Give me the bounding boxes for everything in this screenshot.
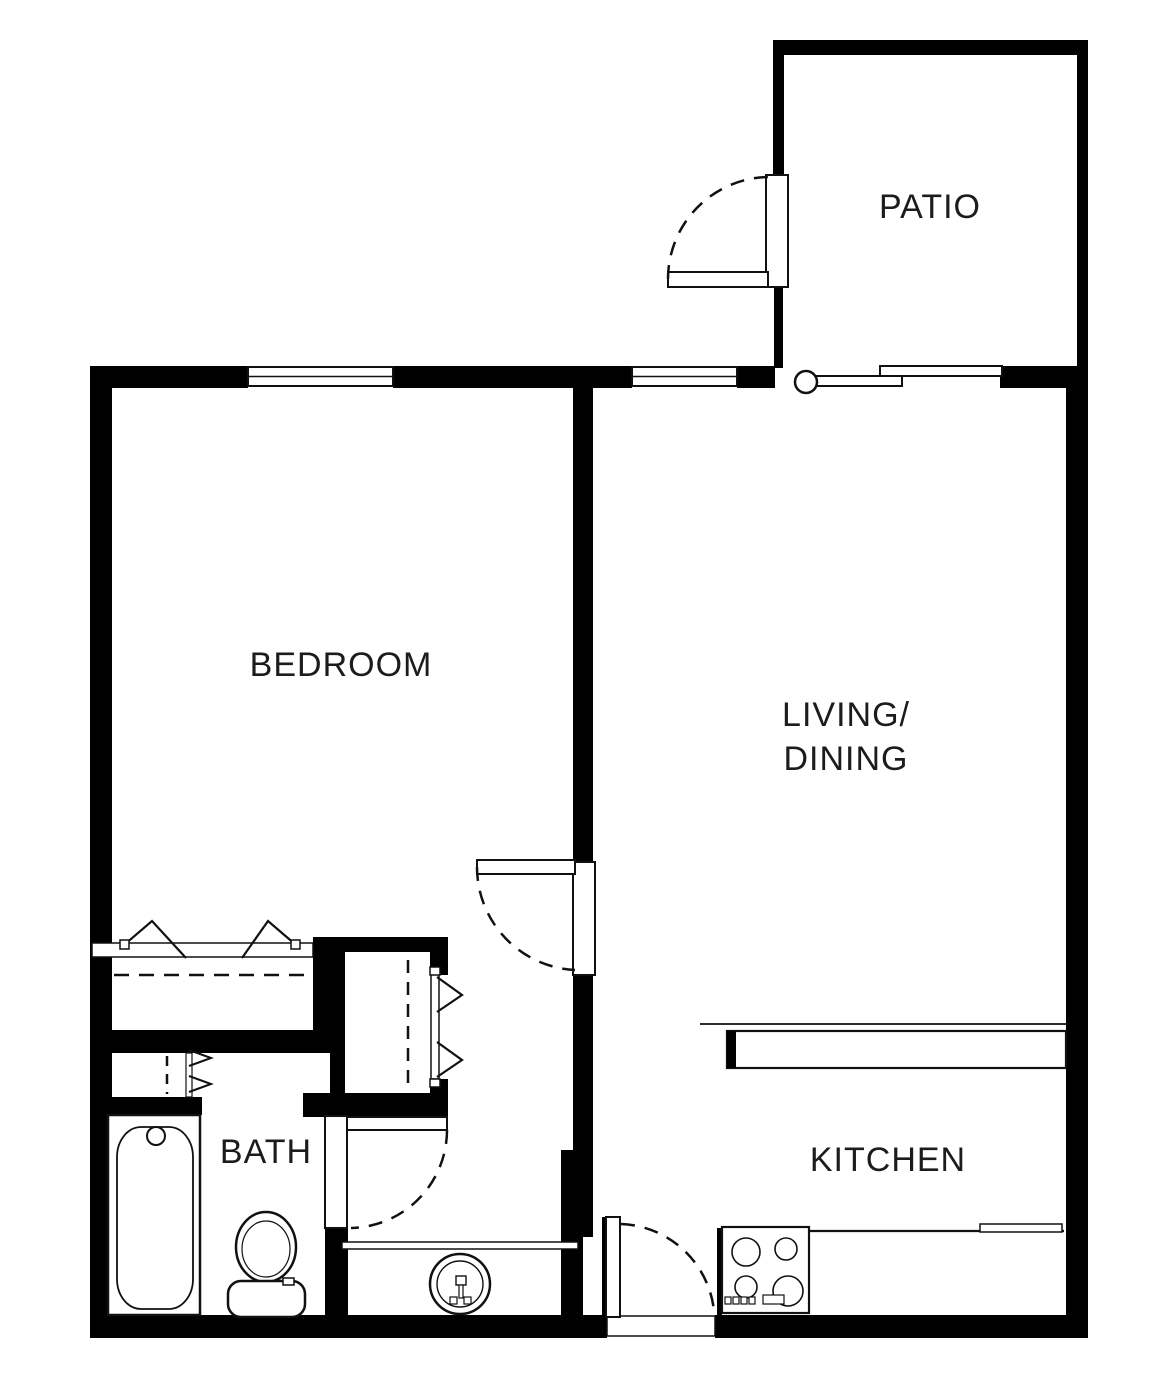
wall-right [1066, 366, 1088, 1338]
entry-door-swing-arc [621, 1224, 714, 1311]
vanity-sink [342, 1242, 578, 1314]
range-knob-1 [725, 1297, 731, 1304]
range-knob-3 [741, 1297, 747, 1304]
linen-bottom-wall [90, 1097, 202, 1115]
wall-top-3 [737, 366, 775, 388]
bedroom-door-swing-arc [477, 867, 575, 970]
vanity-counter-edge [342, 1242, 578, 1249]
patio-wall-left-lower [774, 287, 783, 368]
bath-label: BATH [220, 1130, 312, 1174]
divider-wall-widening [561, 1150, 573, 1237]
breakfast-bar-endcap [727, 1031, 736, 1068]
kitchen-counters [700, 1024, 1066, 1232]
bath-door-leaf [347, 1117, 447, 1130]
bedroom-closet [92, 921, 313, 975]
wall-top-2 [393, 366, 632, 388]
wall-bottom-1 [90, 1315, 607, 1338]
bifold-hinge-right [291, 940, 300, 949]
range-knob-2 [733, 1297, 739, 1304]
counter-appliance [980, 1224, 1062, 1232]
living-dining-label-line1: LIVING/ [782, 693, 910, 737]
hall-bifold-bottom [437, 1042, 462, 1077]
divider-wall-lower [573, 975, 593, 1237]
bedroom-window [248, 367, 393, 386]
range-cooktop [722, 1227, 809, 1313]
wall-bottom-2 [715, 1315, 1088, 1338]
patio-label: PATIO [879, 185, 981, 229]
range-knob-4 [749, 1297, 755, 1304]
kitchen-label: KITCHEN [810, 1138, 966, 1182]
closet-bottom-wall [90, 1030, 330, 1053]
bedroom-swing-door [477, 860, 595, 975]
range-control-panel [763, 1295, 784, 1304]
tub-drain [147, 1127, 165, 1145]
bath-door-swing-arc [351, 1130, 447, 1228]
floor-plan-drawing [0, 0, 1165, 1376]
patio-wall-left-upper [773, 40, 784, 175]
wall-top-4 [1000, 366, 1077, 388]
sink-faucet-stem [459, 1285, 463, 1298]
divider-wall-upper [573, 388, 593, 862]
entry-swing-door [602, 1217, 715, 1336]
living-dining-label: LIVING/ DINING [782, 693, 910, 781]
sink-handle-left [450, 1297, 457, 1304]
patio-structure [668, 40, 1088, 368]
toilet-tank [228, 1281, 305, 1317]
breakfast-bar-counter [727, 1031, 1066, 1068]
toilet-bowl [236, 1212, 296, 1282]
patio-wall-top [773, 40, 1088, 55]
toilet [228, 1212, 305, 1317]
hall-bifold-top [437, 977, 462, 1012]
bath-swing-door [325, 1116, 447, 1228]
slider-handle [795, 371, 817, 393]
bedroom-door-leaf [477, 860, 575, 874]
bedroom-label: BEDROOM [250, 643, 433, 687]
bedroom-door-frame [573, 862, 595, 975]
living-dining-label-line2: DINING [782, 737, 910, 781]
patio-swing-door [668, 175, 788, 287]
linen-closet [167, 1050, 211, 1097]
bath-top-wall [303, 1093, 448, 1117]
sink-handle-right [464, 1297, 471, 1304]
patio-door-leaf [668, 272, 768, 287]
patio-door-swing-arc [668, 177, 770, 279]
hall-bifold-hinge-top [430, 967, 440, 975]
patio-door-frame [766, 175, 788, 287]
bathtub [108, 1115, 200, 1315]
entry-threshold [607, 1316, 715, 1336]
hall-closet [408, 960, 462, 1088]
hall-closet-track [431, 973, 439, 1079]
living-window [632, 367, 737, 386]
hall-closet-left-wall [330, 952, 345, 1097]
bifold-hinge-left [120, 940, 129, 949]
bath-door-frame [325, 1116, 347, 1228]
sink-faucet [456, 1276, 466, 1285]
closet-top-wall [313, 937, 448, 952]
patio-wall-right [1077, 40, 1088, 366]
wall-top-1 [90, 366, 248, 388]
tub-basin [117, 1127, 193, 1309]
entry-door-leaf [606, 1217, 620, 1317]
toilet-flush [283, 1278, 294, 1285]
sliding-patio-door [795, 366, 1002, 393]
floor-plan: PATIO BEDROOM LIVING/ DINING BATH KITCHE… [0, 0, 1165, 1376]
hall-bifold-hinge-bottom [430, 1079, 440, 1087]
slider-panel-outer [880, 366, 1002, 376]
